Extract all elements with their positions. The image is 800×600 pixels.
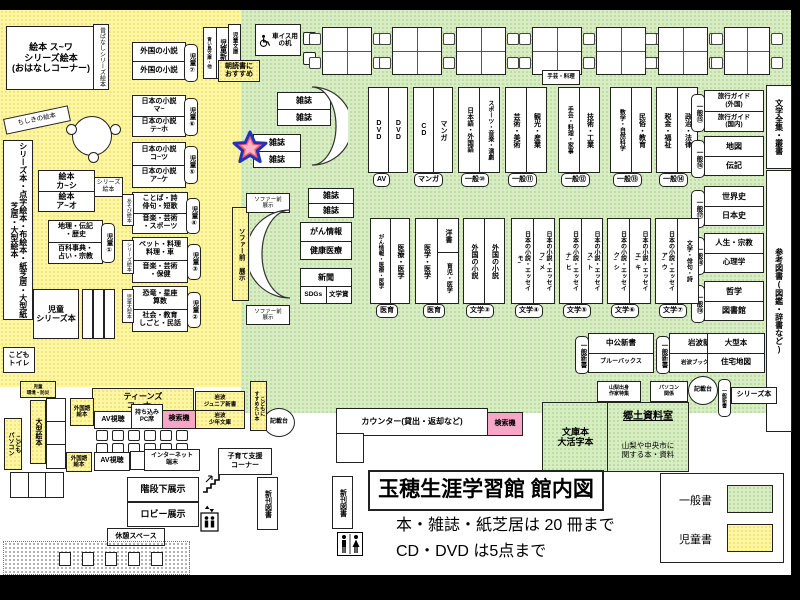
chizu: 地図 [705, 137, 763, 156]
kyodo-title: 郷土資料室 [608, 403, 688, 430]
sdgs: SDGs [301, 287, 327, 304]
aoitori-bunko: 青い鳥文庫・他 [204, 28, 216, 78]
tegei-ryori-label: 手芸・料理 [542, 70, 580, 85]
av-viewing-seat: AV視聴 [94, 411, 132, 429]
tag-general-11: 一般⑪ [508, 173, 537, 187]
kotoba-shelf: ことば・詩 俳句・短歌 音楽・芸術 ・スポーツ [132, 192, 188, 234]
jp-te-ho: 日本の小説 テ~ホ [133, 116, 185, 137]
map-biography-shelf: 地図 伝記 [704, 136, 764, 176]
iwanami-shonen-bunko: 岩波 少年文庫 [195, 410, 245, 429]
gaikoku-shosetsu: 外国の小説 [133, 43, 185, 61]
reading-table [392, 27, 442, 75]
lending-limit-books: 本・雑誌・紙芝居は 20 冊まで [396, 511, 615, 535]
tag-general-14: 一般⑭ [659, 173, 688, 187]
childcare-support-corner: 子育て支援 コーナー [218, 448, 272, 475]
reading-table [596, 27, 646, 75]
ippan-shinsho-tag: 一般新書 [575, 336, 589, 374]
ogata-bon: 大型本 [708, 334, 764, 353]
shelf-math-folk: 数学・自然科学 民俗・教育 [610, 87, 652, 173]
av-viewing-seat: AV視聴 [94, 452, 130, 471]
new-books-shelf: 新刊図書 [332, 476, 353, 529]
shelf-col: 日本の小説・エッセイ ス~ト [581, 219, 603, 303]
shelf-col: スポーツ・音楽・演劇 [479, 88, 500, 172]
shelf-col: 芸術・美術 [506, 88, 526, 172]
jp-novels-ko-shelf: 日本の小説 コ~ツ 日本の小説 ア~ケ [132, 142, 186, 188]
jido1-tag: 児童① [101, 223, 115, 263]
shelf-unit [46, 398, 66, 423]
ehon-ka-shi: 絵本 カ~シ [39, 171, 94, 191]
shelf-col: DVD [388, 88, 408, 172]
shelf-cd-manga: CD マンガ [413, 87, 453, 173]
travel-foreign: 旅行ガイド (外国) [705, 91, 763, 111]
ippan-shinsho-tag: 一般新書 [718, 379, 731, 417]
legend-general-label: 一般書 [679, 492, 712, 508]
kids-pc: こども パソコン [4, 418, 22, 470]
shelf-col: 税金・福祉 [657, 88, 677, 172]
shelf-col: 外国の小説 [464, 219, 484, 303]
tag-general-12: 一般⑫ [561, 173, 590, 187]
ippan-shinsho-tag: 一般新書 [656, 336, 670, 374]
literature-collection-shelf: 文学全集・叢書 [766, 85, 792, 169]
byod-pc-seat: 持ち込み PC席 [131, 404, 163, 429]
shelf-col: 民俗・教育 [631, 88, 652, 172]
sofa-front-display: ソファー前 展示 [246, 305, 290, 325]
ongaku-sports: 音楽・芸術 ・スポーツ [133, 213, 187, 234]
shelf-col: 観光・産業 [526, 88, 547, 172]
asobi-ehon-label: あそび絵本 [122, 194, 134, 226]
travel-guide-shelf: 旅行ガイド (外国) 旅行ガイド (国内) [704, 90, 764, 132]
tag-bungaku-7: 文学⑦ [659, 304, 687, 318]
internet-terminal: インターネット 端末 [144, 449, 200, 471]
zasshi: 雑誌 [309, 189, 353, 203]
tag-general-15: 一般⑮ [691, 94, 705, 132]
shelf-col: 外国の小説 [484, 219, 505, 303]
kyodo-desc: 山梨や中央市に 関する本・資料 [608, 430, 688, 471]
elevator-icon [200, 504, 219, 532]
wheelchair-desk: 車イス用 の机 [255, 24, 301, 56]
foreign-novels-shelf: 外国の小説 外国の小説 [132, 42, 186, 80]
wheelchair-icon [258, 34, 271, 47]
asadoku-recommend: 朝読書に おすすめ [218, 60, 260, 82]
legend-children-label: 児童書 [679, 531, 712, 547]
shelf-unit [130, 451, 145, 470]
reading-table [532, 27, 582, 75]
jp-a-ke: 日本の小説 ア~ケ [133, 165, 185, 188]
reading-table [322, 27, 372, 75]
kids-environment-shelf: 児童 環境・防災 [20, 381, 56, 398]
tag-manga: マンガ [414, 173, 443, 187]
reading-table [724, 27, 770, 75]
library-floor-map: 絵本 ス~ワ シリーズ絵本 (おはなしコーナー) 昔ばなしシリーズ絵本 ちしきの… [0, 0, 800, 600]
denki: 伝記 [705, 156, 763, 176]
geography-biography-shelf: 地理・伝記 ・歴史 百科事典・ 占い・宗教 [48, 220, 103, 264]
jp-novels-ma-shelf: 日本の小説 マ~ 日本の小説 テ~ホ [132, 95, 186, 137]
shelf-unit [82, 289, 93, 339]
kids-toilet: こども トイレ [3, 347, 35, 373]
series-ehon-label: シリーズ絵本 [94, 177, 123, 197]
life-religion-shelf: 人生・宗教 心理学 [704, 233, 764, 273]
chair [88, 152, 99, 163]
jido4-tag: 児童④ [186, 198, 200, 234]
yosho: 洋書 [438, 219, 459, 252]
jido2-tag: 児童② [187, 292, 201, 328]
zasshi: 雑誌 [309, 203, 353, 218]
series-ehon-label2: シリーズ絵本 [122, 240, 134, 274]
shelf-jp-essay-ku: 日本の小説・エッセイ ク~シ 日本の小説・エッセイ エ~キ [607, 218, 651, 304]
shelf-col: DVD [369, 88, 388, 172]
round-table [72, 116, 112, 156]
history-shelf: 世界史 日本史 [704, 186, 764, 226]
entrance-mat-area [3, 541, 190, 575]
shelf-col: 医療・医学 [390, 219, 410, 303]
shakai-kyoiku: 社会・教育 しごと・民話 [133, 309, 187, 332]
shelf-jp-essay-a: 日本の小説・エッセイ ア~ウ 文学・俳句・詩 [655, 218, 699, 304]
under-stairs-display: 階段下展示 [127, 477, 199, 502]
shelf-col: 日本の小説・エッセイ ク~シ [608, 219, 629, 303]
shelf-col: 医学・医学 [416, 219, 437, 303]
jutaku-chizu: 住宅地図 [708, 353, 764, 373]
kyoryu-seiza: 恐竜・星座 算数 [133, 287, 187, 309]
picture-books-shelf: 絵本 カ~シ 絵本 ア~オ [38, 170, 95, 212]
tag-av: AV [373, 173, 390, 187]
shelf-jp-essay-mo: 日本の小説・エッセイ モ~ 日本の小説・エッセイ フ~メ [511, 218, 555, 304]
pet-ryori: ペット・料理 料理・車 [133, 238, 187, 260]
service-counter: カウンター(貸出・返却など) [336, 408, 488, 436]
shelf-col: CD [414, 88, 433, 172]
shelf-medical-2: 医学・医学 洋書 育児・医学 [415, 218, 459, 304]
chair [66, 124, 77, 135]
yamanashi-authors-box: 山梨出身 作家特集 [597, 381, 641, 402]
shelf-col: 日本語・外国語 [459, 88, 479, 172]
search-terminal: 検索機 [487, 412, 523, 436]
shelf-col: 日本の小説・エッセイ ナ~ヒ [560, 219, 581, 303]
writing-stand: 記載台 [688, 376, 718, 405]
sofa-front-display-strip: ソファー前 展示 [232, 207, 249, 301]
tag-iiku: 医育 [423, 304, 445, 318]
restroom-icon [337, 532, 363, 556]
shelf-unit [46, 421, 66, 446]
jido-series-shelf: 児童 シリーズ本 [33, 289, 79, 339]
shelf-col: 文学・俳句・詩 [677, 219, 699, 303]
legend-children-swatch [727, 524, 773, 552]
chair [110, 124, 121, 135]
cancer-health-info: がん情報 健康医療 [300, 222, 352, 260]
tag-general-13: 一般⑬ [613, 173, 642, 187]
shelf-unit [46, 444, 66, 469]
shelf-art-tourism: 芸術・美術 観光・産業 [505, 87, 547, 173]
chair [144, 430, 156, 441]
mukashibanashi-series-shelf: 昔ばなしシリーズ絵本 [93, 24, 109, 90]
shelf-dvd: DVD DVD [368, 87, 408, 173]
shelf-foreign-novels: 外国の小説 外国の小説 [463, 218, 505, 304]
lobby-display: ロビー展示 [127, 502, 199, 527]
gan-joho: がん情報 [301, 223, 351, 241]
jido-bunko-strip: 児童文庫 [228, 24, 241, 62]
writing-stand: 記載台 [263, 408, 295, 437]
shinrigaku: 心理学 [705, 253, 763, 273]
shelf-col: 日本の小説・エッセイ ア~ウ [656, 219, 677, 303]
stairs-icon [201, 472, 221, 494]
sekaishi: 世界史 [705, 187, 763, 206]
jido5-tag: 児童⑤ [184, 146, 198, 184]
kenko-iryo: 健康医療 [301, 241, 351, 260]
dinosaur-math-shelf: 恐竜・星座 算数 社会・教育 しごと・民話 [132, 286, 188, 332]
shelf-col: 日本の小説・エッセイ モ~ [512, 219, 533, 303]
current-location-star-icon [232, 130, 268, 166]
tag-bungaku-3: 文学③ [466, 304, 494, 318]
travel-domestic: 旅行ガイド (国内) [705, 111, 763, 132]
pc-related-box: パソコン 関係 [650, 381, 688, 402]
tag-general-16: 一般⑯ [691, 140, 705, 178]
magazine-rack: 雑誌 雑誌 [308, 188, 354, 218]
chuko-shinsho-shelf: 中公新書 ブルーバックス [588, 333, 654, 373]
jinsei-shukyo: 人生・宗教 [705, 234, 763, 253]
tag-iiku: 医育 [376, 304, 398, 318]
chuko-shinsho: 中公新書 [589, 334, 653, 353]
iwanami-junior-shinsho: 岩波 ジュニア新書 [195, 391, 245, 412]
chiri-denki: 地理・伝記 ・歴史 [49, 221, 102, 242]
large-books-shelf: 大型本 住宅地図 [707, 333, 765, 373]
jido-ogata-label: 児童大型本 [122, 289, 134, 323]
crescent-sofa [300, 84, 348, 168]
tetsugaku: 哲学 [705, 282, 763, 301]
shelf-col: 日本の小説・エッセイ エ~キ [629, 219, 651, 303]
local-materials-room: 郷土資料室 山梨や中央市に 関する本・資料 [607, 402, 689, 472]
new-books-shelf: 新刊図書 [257, 477, 278, 530]
kotoba-shi: ことば・詩 俳句・短歌 [133, 193, 187, 213]
foreign-language-picture-books: 外国語 絵本 [70, 398, 94, 426]
bungakusho: 文学賞 [327, 291, 352, 298]
large-picture-books-shelf: 大型絵本 [30, 400, 46, 464]
shelf-col: 手芸・料理・家事 [559, 88, 579, 172]
chair [112, 430, 124, 441]
legend: 一般書 児童書 [660, 473, 784, 563]
nihonshi: 日本史 [705, 206, 763, 226]
service-counter-wing [336, 433, 364, 463]
jido3-tag: 児童③ [187, 244, 201, 280]
chair [96, 430, 108, 441]
philosophy-shelf: 哲学 図書館 [704, 281, 764, 321]
lending-limit-cd-dvd: CD・DVD は5点まで [396, 537, 546, 561]
wheelchair-desk-label: 車イス用 の机 [272, 33, 298, 48]
search-terminal: 検索機 [162, 410, 196, 429]
toshokan: 図書館 [705, 301, 763, 321]
bunko-large-print-area: 文庫本 大活字本 [542, 402, 609, 472]
shelf-col: マンガ [433, 88, 453, 172]
shelf-jp-essay-na: 日本の小説・エッセイ ナ~ヒ 日本の小説・エッセイ ス~ト [559, 218, 603, 304]
jido7-tag: 児童⑦ [184, 44, 198, 82]
bench [10, 472, 64, 498]
bluebacks: ブルーバックス [589, 353, 653, 373]
reading-table [658, 27, 708, 75]
shelf-col: 数学・自然科学 [611, 88, 631, 172]
foreign-language-picture-books: 外国語 絵本 [66, 452, 92, 472]
shelf-unit [104, 289, 115, 339]
series-bon-label: シリーズ本 [731, 387, 777, 404]
page-title: 玉穂生涯学習館 館内図 [368, 470, 604, 511]
shelf-craft-tech: 手芸・料理・家事 技術・工業 [558, 87, 600, 173]
pet-cooking-shelf: ペット・料理 料理・車 音楽・芸術 ・保健 [132, 237, 188, 283]
newspaper-rack: 新聞 SDGs 文学賞 [300, 268, 352, 304]
chair [176, 430, 188, 441]
ehon-a-o: 絵本 ア~オ [39, 191, 94, 212]
shimbun: 新聞 [301, 269, 351, 286]
tag-bungaku-6: 文学⑥ [611, 304, 639, 318]
shelf-col: 技術・工業 [579, 88, 600, 172]
jp-ko-tsu: 日本の小説 コ~ツ [133, 143, 185, 165]
crescent-sofa [250, 206, 302, 302]
jp-ma: 日本の小説 マ~ [133, 96, 185, 116]
hyakka-jiten: 百科事典・ 占い・宗教 [49, 242, 102, 264]
series-braille-kamishibai-shelf: シリーズ本・点字絵本・布絵本・紙芝居・大型紙芝居・大型絵本 [3, 140, 33, 320]
chair [160, 430, 172, 441]
recommended-for-kids-strip: こどもに すすめたい本 [250, 381, 267, 431]
jido6-tag: 児童⑥ [184, 98, 198, 136]
tag-bungaku-4: 文学④ [515, 304, 543, 318]
gaikoku-shosetsu: 外国の小説 [133, 61, 185, 80]
tag-general-10: 一般⑩ [461, 173, 489, 187]
shelf-col: がん情報・医療・医学 [371, 219, 390, 303]
chair [128, 430, 140, 441]
shelf-col: 日本の小説・エッセイ フ~メ [533, 219, 555, 303]
reading-table [456, 27, 506, 75]
shelf-unit [93, 289, 104, 339]
legend-general-swatch [727, 485, 773, 513]
ohanashi-corner: 絵本 ス~ワ シリーズ絵本 (おはなしコーナー) [6, 26, 96, 90]
shelf-medical-1: がん情報・医療・医学 医療・医学 [370, 218, 410, 304]
ikuji-igaku: 育児・医学 [438, 252, 459, 303]
shelf-language-sports: 日本語・外国語 スポーツ・音楽・演劇 [458, 87, 500, 173]
ongaku-hoken: 音楽・芸術 ・保健 [133, 260, 187, 283]
tag-bungaku-5: 文学⑤ [563, 304, 591, 318]
